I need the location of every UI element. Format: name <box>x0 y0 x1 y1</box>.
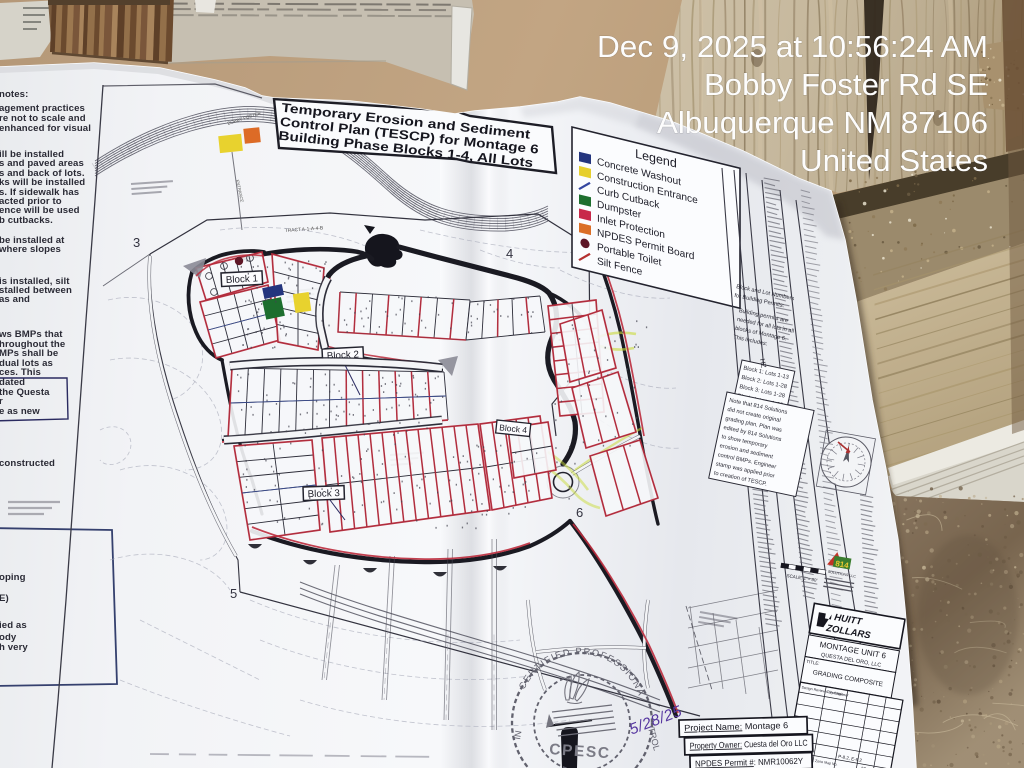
svg-text:Dec 9, 2025 at 10:56:24 AM: Dec 9, 2025 at 10:56:24 AM <box>597 29 988 64</box>
svg-text:oping: oping <box>0 572 26 583</box>
svg-text:ied as: ied as <box>0 620 27 631</box>
svg-text:5: 5 <box>230 586 237 601</box>
svg-text:Bobby Foster Rd SE: Bobby Foster Rd SE <box>704 67 988 102</box>
svg-text:E): E) <box>0 593 9 604</box>
svg-text:3: 3 <box>133 235 140 250</box>
svg-text:United States: United States <box>800 143 988 178</box>
svg-text:Block 1: Block 1 <box>226 273 259 286</box>
svg-text:6: 6 <box>576 505 583 520</box>
svg-text:4: 4 <box>506 246 513 261</box>
svg-text:NPDES Permit #: NMR10062Y: NPDES Permit #: NMR10062Y <box>695 756 803 768</box>
svg-text:IN: IN <box>512 730 523 741</box>
svg-text:Albuquerque NM 87106: Albuquerque NM 87106 <box>657 105 988 140</box>
svg-text:e as new: e as new <box>0 406 40 417</box>
svg-text:Block 3: Block 3 <box>308 488 341 500</box>
svg-text:b cutbacks.: b cutbacks. <box>0 215 53 226</box>
svg-text:the Questa: the Questa <box>0 387 50 398</box>
svg-text:where slopes: where slopes <box>0 244 61 255</box>
svg-text:notes:: notes: <box>0 89 28 100</box>
svg-text:h very: h very <box>0 642 28 653</box>
svg-text:constructed: constructed <box>0 458 55 469</box>
svg-text:enhanced for visual: enhanced for visual <box>0 123 91 134</box>
svg-text:as and: as and <box>0 294 30 305</box>
